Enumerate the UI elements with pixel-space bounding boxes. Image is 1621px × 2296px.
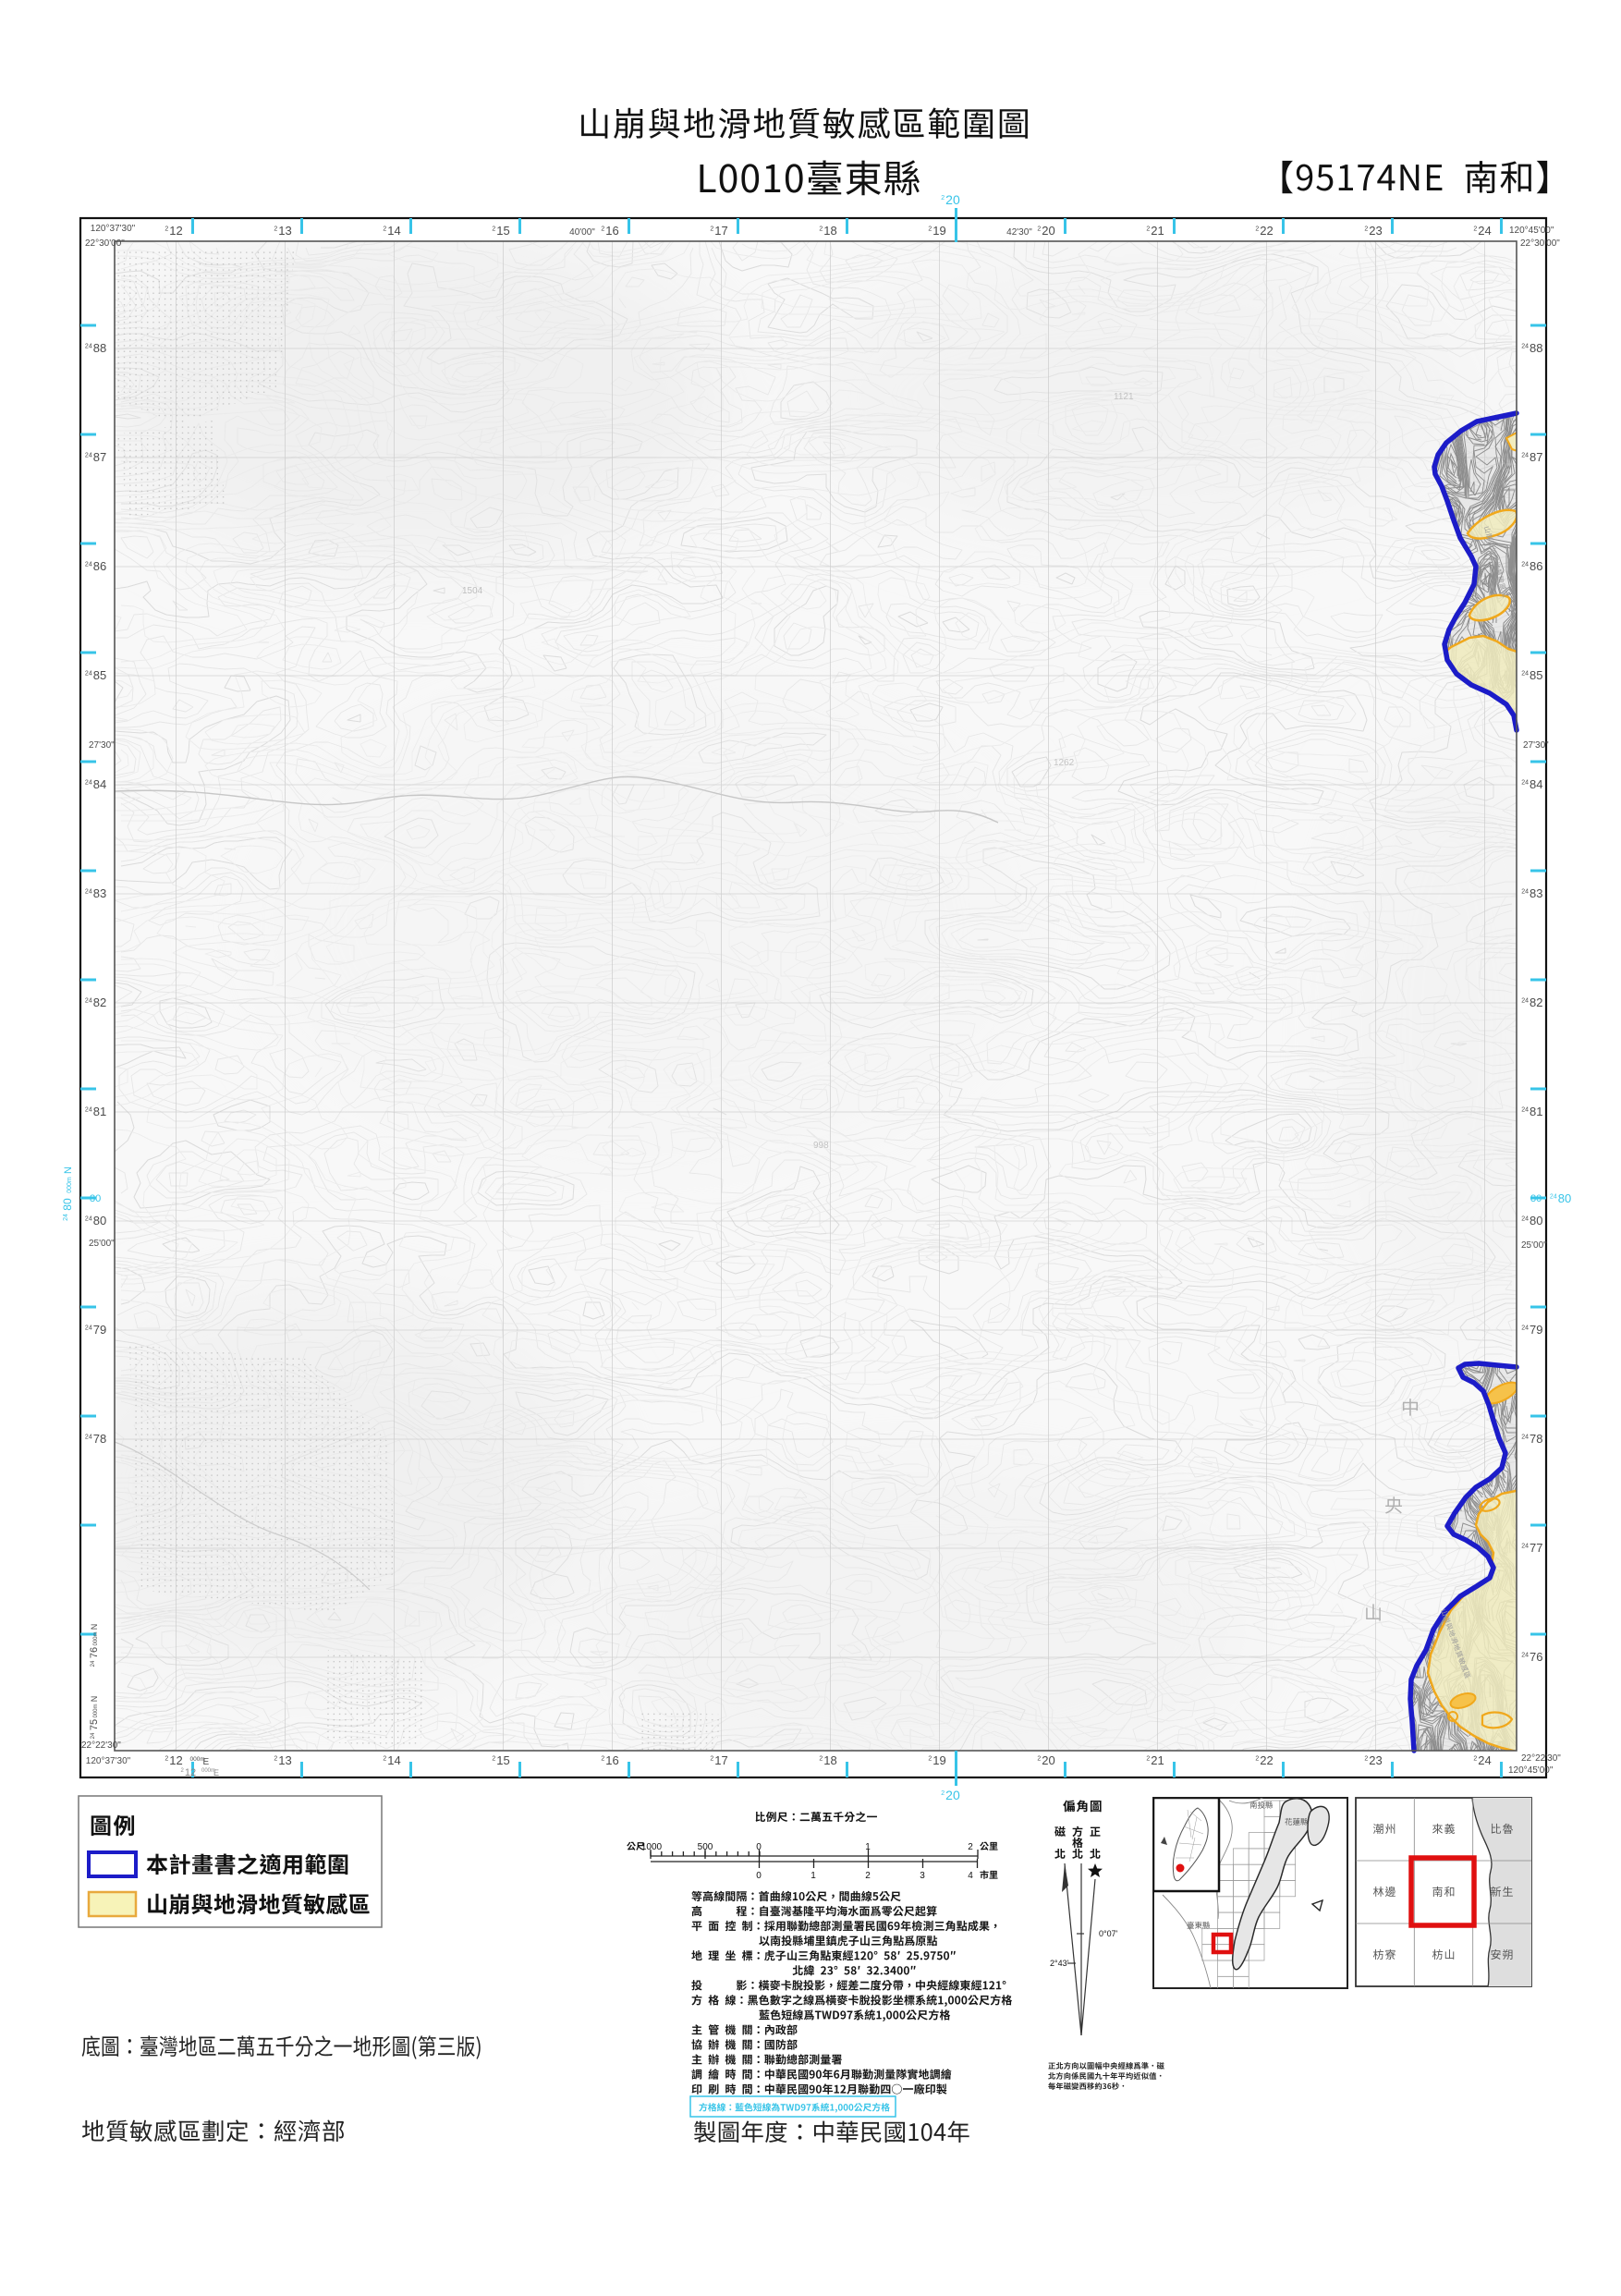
svg-text:40'00": 40'00" — [569, 227, 595, 238]
svg-text:24: 24 — [1478, 1753, 1491, 1767]
svg-text:000m: 000m — [93, 1704, 99, 1717]
svg-text:42'30": 42'30" — [1006, 227, 1032, 238]
svg-text:120°37'30": 120°37'30" — [91, 224, 136, 234]
svg-text:0: 0 — [756, 1871, 762, 1881]
svg-text:24: 24 — [1521, 343, 1529, 349]
svg-text:80: 80 — [90, 1193, 101, 1204]
svg-text:24: 24 — [85, 343, 92, 349]
svg-text:2: 2 — [1364, 1755, 1368, 1762]
svg-text:24: 24 — [1521, 561, 1529, 568]
svg-text:88: 88 — [93, 341, 106, 355]
svg-text:88: 88 — [1530, 341, 1542, 355]
svg-text:2: 2 — [1473, 1755, 1477, 1762]
svg-text:1000: 1000 — [641, 1842, 663, 1852]
svg-text:2: 2 — [1473, 226, 1477, 232]
svg-text:2: 2 — [165, 226, 168, 232]
svg-text:23: 23 — [1369, 224, 1382, 238]
svg-text:998: 998 — [813, 1141, 829, 1151]
svg-text:85: 85 — [1530, 668, 1542, 682]
svg-text:2: 2 — [492, 1755, 495, 1762]
svg-text:20: 20 — [1042, 224, 1054, 238]
svg-text:25'00": 25'00" — [1521, 1240, 1547, 1251]
svg-text:2: 2 — [601, 226, 604, 232]
svg-text:24: 24 — [85, 1325, 92, 1331]
svg-text:1: 1 — [865, 1842, 871, 1852]
svg-text:27'30": 27'30" — [89, 740, 115, 751]
svg-text:2: 2 — [710, 226, 713, 232]
svg-text:24: 24 — [85, 561, 92, 568]
svg-text:78: 78 — [1530, 1432, 1542, 1446]
svg-text:15: 15 — [496, 1753, 509, 1767]
svg-text:12: 12 — [169, 1753, 182, 1767]
svg-text:0: 0 — [756, 1842, 762, 1852]
svg-text:83: 83 — [1530, 886, 1542, 900]
svg-text:000m: 000m — [67, 1177, 73, 1193]
svg-text:24: 24 — [1521, 1215, 1529, 1222]
svg-text:2: 2 — [968, 1842, 973, 1852]
svg-text:24: 24 — [1521, 1543, 1529, 1549]
svg-text:16: 16 — [605, 1753, 618, 1767]
svg-text:2: 2 — [1037, 1755, 1041, 1762]
svg-text:2: 2 — [1255, 226, 1259, 232]
svg-text:2: 2 — [1255, 1755, 1259, 1762]
svg-text:1: 1 — [810, 1871, 816, 1881]
svg-text:18: 18 — [823, 224, 836, 238]
svg-text:22°22'30": 22°22'30" — [81, 1740, 121, 1751]
svg-text:24: 24 — [85, 1215, 92, 1222]
svg-text:81: 81 — [93, 1105, 106, 1118]
svg-text:2: 2 — [383, 1755, 386, 1762]
svg-text:87: 87 — [93, 450, 106, 464]
svg-text:1504: 1504 — [462, 586, 483, 596]
svg-text:1121: 1121 — [1114, 392, 1134, 402]
svg-text:24: 24 — [1521, 670, 1529, 677]
svg-text:86: 86 — [1530, 559, 1542, 573]
svg-text:N: N — [90, 1696, 99, 1703]
svg-text:24: 24 — [1521, 1652, 1529, 1658]
svg-text:500: 500 — [698, 1842, 713, 1852]
svg-text:85: 85 — [93, 668, 106, 682]
svg-text:80: 80 — [61, 1198, 74, 1211]
svg-text:E: E — [213, 1768, 219, 1777]
svg-text:N: N — [63, 1166, 74, 1174]
svg-text:20: 20 — [945, 1788, 960, 1802]
svg-text:N: N — [90, 1624, 99, 1630]
svg-text:80: 80 — [1530, 1214, 1542, 1227]
svg-text:000m: 000m — [93, 1631, 99, 1645]
svg-text:12: 12 — [185, 1767, 196, 1778]
svg-text:24: 24 — [85, 888, 92, 895]
svg-text:21: 21 — [1151, 1753, 1164, 1767]
svg-text:2: 2 — [928, 1755, 932, 1762]
svg-text:24: 24 — [63, 1214, 69, 1221]
svg-text:14: 14 — [387, 224, 400, 238]
svg-text:2: 2 — [928, 226, 932, 232]
svg-text:2: 2 — [492, 226, 495, 232]
svg-text:19: 19 — [932, 224, 945, 238]
svg-text:13: 13 — [278, 224, 291, 238]
svg-text:2: 2 — [383, 226, 386, 232]
svg-text:16: 16 — [605, 224, 618, 238]
svg-text:120°45'00": 120°45'00" — [1509, 226, 1554, 236]
svg-text:24: 24 — [85, 1434, 92, 1440]
svg-text:27'30": 27'30" — [1523, 740, 1549, 751]
svg-text:2°43': 2°43' — [1050, 1959, 1069, 1968]
svg-text:4: 4 — [968, 1871, 973, 1881]
svg-text:20: 20 — [1042, 1753, 1054, 1767]
svg-text:2: 2 — [165, 1755, 168, 1762]
svg-text:24: 24 — [85, 452, 92, 458]
svg-text:23: 23 — [1369, 1753, 1382, 1767]
svg-text:12: 12 — [169, 224, 182, 238]
svg-text:17: 17 — [714, 224, 727, 238]
svg-text:76: 76 — [1530, 1650, 1542, 1664]
svg-text:80: 80 — [1530, 1193, 1542, 1204]
svg-text:82: 82 — [93, 995, 106, 1009]
svg-text:22: 22 — [1260, 224, 1273, 238]
svg-text:2: 2 — [865, 1871, 871, 1881]
svg-text:87: 87 — [1530, 450, 1542, 464]
svg-text:24: 24 — [85, 670, 92, 677]
svg-text:17: 17 — [714, 1753, 727, 1767]
svg-text:13: 13 — [278, 1753, 291, 1767]
svg-text:0°07': 0°07' — [1099, 1929, 1118, 1938]
svg-text:24: 24 — [1478, 224, 1491, 238]
svg-text:120°45'00": 120°45'00" — [1508, 1765, 1554, 1776]
svg-text:24: 24 — [91, 1660, 96, 1667]
svg-text:79: 79 — [1530, 1323, 1542, 1337]
svg-text:2: 2 — [274, 1755, 277, 1762]
svg-text:24: 24 — [1521, 452, 1529, 458]
svg-text:2: 2 — [1146, 1755, 1150, 1762]
svg-text:2: 2 — [1146, 226, 1150, 232]
svg-text:24: 24 — [85, 1106, 92, 1113]
svg-text:83: 83 — [93, 886, 106, 900]
svg-text:22°22'30": 22°22'30" — [1521, 1753, 1561, 1764]
svg-text:22: 22 — [1260, 1753, 1273, 1767]
svg-text:2: 2 — [601, 1755, 604, 1762]
svg-text:79: 79 — [93, 1323, 106, 1337]
svg-text:86: 86 — [93, 559, 106, 573]
svg-text:24: 24 — [1521, 1325, 1529, 1331]
svg-text:80: 80 — [93, 1214, 106, 1227]
svg-text:2: 2 — [274, 226, 277, 232]
svg-text:22°30'00": 22°30'00" — [85, 238, 125, 249]
svg-text:24: 24 — [1521, 1106, 1529, 1113]
svg-text:24: 24 — [91, 1732, 96, 1739]
svg-text:24: 24 — [1521, 888, 1529, 895]
svg-text:24: 24 — [85, 779, 92, 786]
svg-text:24: 24 — [1521, 779, 1529, 786]
svg-text:24: 24 — [1550, 1193, 1557, 1200]
svg-text:76: 76 — [89, 1647, 100, 1658]
svg-text:78: 78 — [93, 1432, 106, 1446]
svg-text:81: 81 — [1530, 1105, 1542, 1118]
svg-text:24: 24 — [1521, 1434, 1529, 1440]
svg-text:84: 84 — [1530, 777, 1542, 791]
svg-text:24: 24 — [85, 997, 92, 1004]
svg-text:2: 2 — [941, 1790, 945, 1797]
svg-text:3: 3 — [920, 1871, 925, 1881]
svg-text:120°37'30": 120°37'30" — [86, 1756, 131, 1766]
svg-text:1262: 1262 — [1054, 758, 1075, 768]
svg-text:75: 75 — [89, 1719, 100, 1730]
svg-text:80: 80 — [1558, 1191, 1571, 1205]
svg-text:2: 2 — [1037, 226, 1041, 232]
svg-text:14: 14 — [387, 1753, 400, 1767]
svg-text:2: 2 — [710, 1755, 713, 1762]
svg-text:20: 20 — [945, 192, 960, 207]
svg-text:19: 19 — [932, 1753, 945, 1767]
svg-text:24: 24 — [1521, 997, 1529, 1004]
svg-text:77: 77 — [1530, 1541, 1542, 1555]
svg-text:18: 18 — [823, 1753, 836, 1767]
svg-text:E: E — [203, 1757, 210, 1767]
svg-text:2: 2 — [1364, 226, 1368, 232]
svg-text:15: 15 — [496, 224, 509, 238]
svg-text:2: 2 — [819, 1755, 823, 1762]
svg-text:2: 2 — [941, 195, 945, 202]
svg-text:82: 82 — [1530, 995, 1542, 1009]
svg-text:25'00": 25'00" — [89, 1239, 115, 1249]
svg-text:84: 84 — [93, 777, 106, 791]
svg-text:22°30'00": 22°30'00" — [1520, 238, 1560, 249]
svg-text:21: 21 — [1151, 224, 1164, 238]
svg-text:2: 2 — [819, 226, 823, 232]
